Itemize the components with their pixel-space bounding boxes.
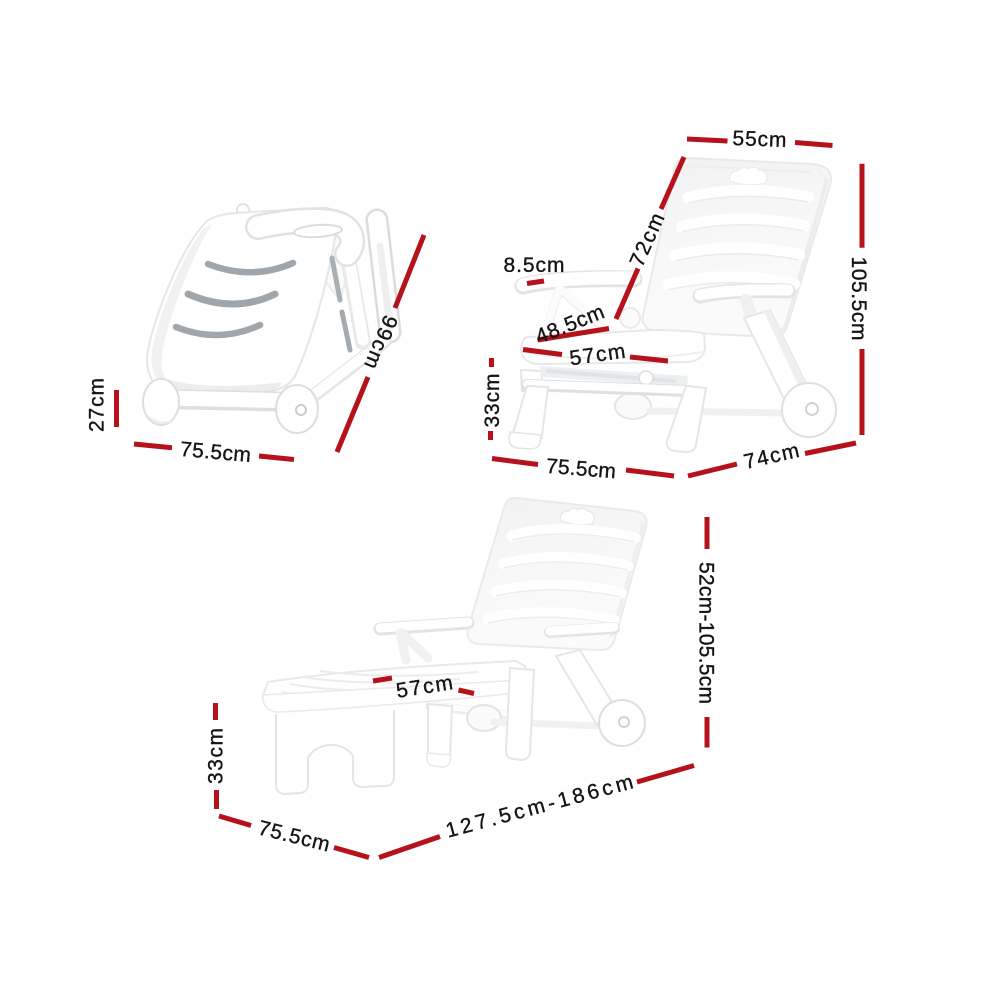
svg-text:33cm: 33cm [481,374,504,428]
svg-text:33cm: 33cm [205,728,228,784]
svg-text:75.5cm: 75.5cm [179,438,252,467]
svg-text:8.5cm: 8.5cm [504,254,565,277]
svg-text:75.5cm: 75.5cm [256,817,332,857]
svg-text:75.5cm: 75.5cm [545,455,617,483]
svg-text:127.5cm-186cm: 127.5cm-186cm [443,770,635,842]
svg-text:105.5cm: 105.5cm [847,257,870,341]
svg-text:74cm: 74cm [742,439,802,474]
svg-text:27cm: 27cm [86,378,109,432]
svg-text:55cm: 55cm [732,127,787,152]
svg-text:52cm-105.5cm: 52cm-105.5cm [695,562,718,704]
